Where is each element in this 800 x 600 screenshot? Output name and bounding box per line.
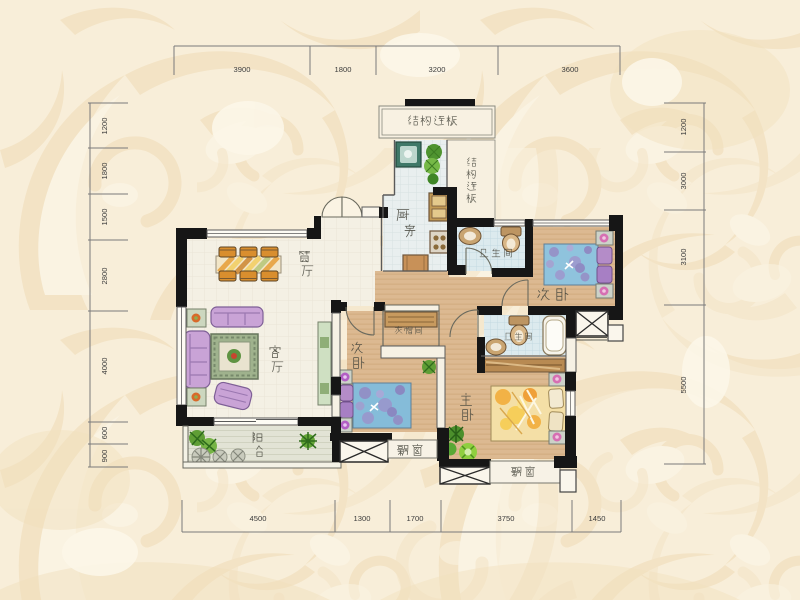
svg-text:3200: 3200 [429, 65, 446, 74]
svg-text:1700: 1700 [407, 514, 424, 523]
svg-text:3000: 3000 [679, 173, 688, 190]
svg-text:1800: 1800 [335, 65, 352, 74]
svg-text:900: 900 [100, 450, 109, 463]
svg-text:1200: 1200 [679, 119, 688, 136]
svg-text:4000: 4000 [100, 358, 109, 375]
svg-text:3750: 3750 [498, 514, 515, 523]
svg-text:3600: 3600 [562, 65, 579, 74]
svg-text:1200: 1200 [100, 118, 109, 135]
svg-text:2800: 2800 [100, 268, 109, 285]
svg-text:1450: 1450 [589, 514, 606, 523]
svg-text:600: 600 [100, 427, 109, 440]
svg-text:3100: 3100 [679, 249, 688, 266]
svg-text:1500: 1500 [100, 209, 109, 226]
svg-text:5500: 5500 [679, 377, 688, 394]
svg-text:3900: 3900 [234, 65, 251, 74]
svg-text:1300: 1300 [354, 514, 371, 523]
svg-text:4500: 4500 [250, 514, 267, 523]
svg-text:1800: 1800 [100, 163, 109, 180]
